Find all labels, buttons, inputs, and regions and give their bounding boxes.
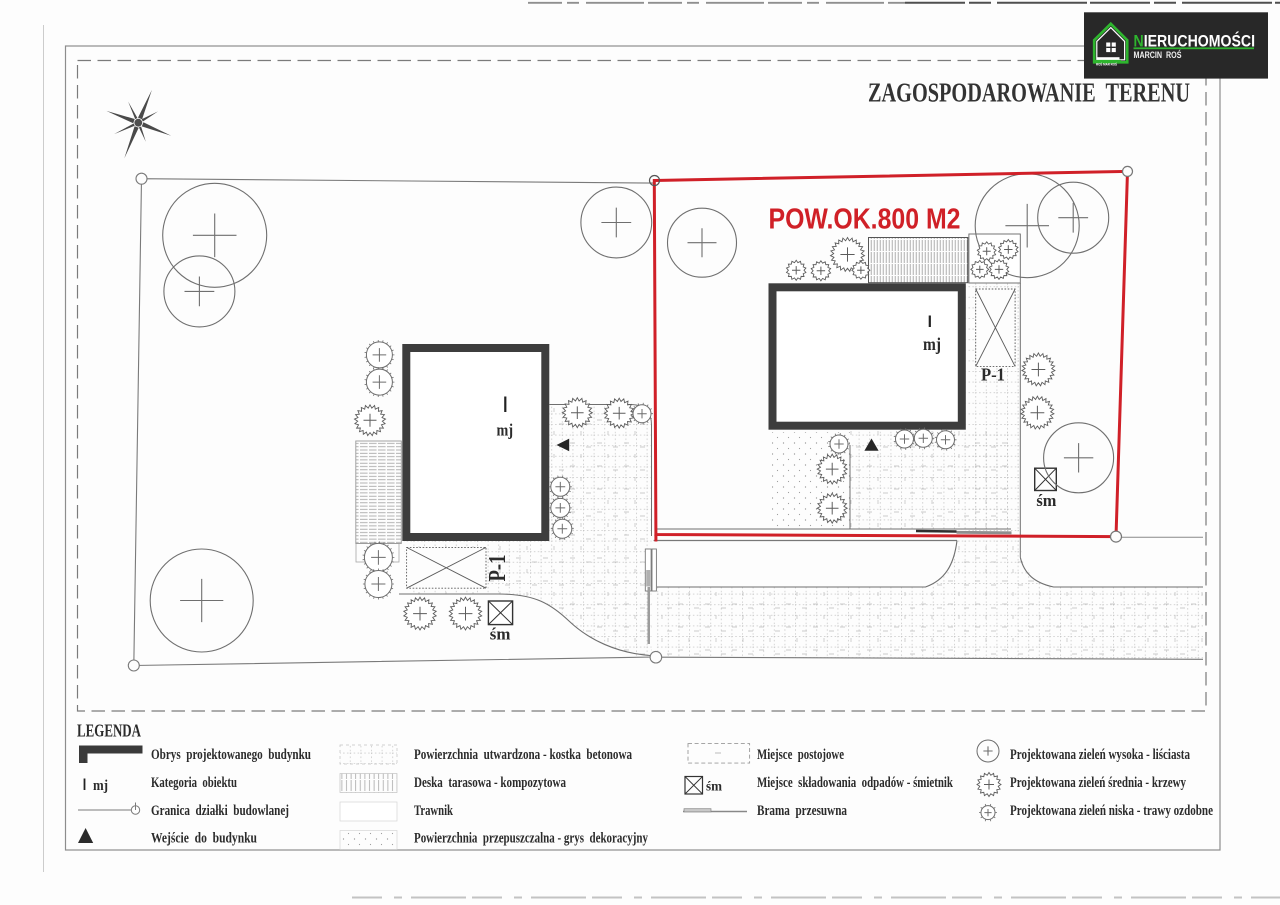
svg-text:Powierzchnia przepuszczalna -: Powierzchnia przepuszczalna - grys dekor…	[414, 831, 649, 847]
svg-text:P-1: P-1	[981, 365, 1005, 385]
svg-text:śm: śm	[1036, 491, 1056, 510]
svg-text:P-1: P-1	[485, 555, 511, 582]
svg-text:Brama przesuwna: Brama przesuwna	[757, 803, 848, 819]
svg-text:POW.OK.800 M2: POW.OK.800 M2	[769, 204, 961, 236]
svg-text:Projektowana zieleń średnia -: Projektowana zieleń średnia - krzewy	[1010, 775, 1187, 791]
svg-text:mj: mj	[923, 334, 941, 354]
svg-text:ROŚ MAR ROŚ: ROŚ MAR ROŚ	[1096, 62, 1118, 67]
svg-text:Projektowana zieleń niska - tr: Projektowana zieleń niska - trawy ozdobn…	[1010, 803, 1213, 819]
svg-text:śm: śm	[490, 625, 511, 644]
svg-text:Powierzchnia utwardzona - kos: Powierzchnia utwardzona - kostka betonow…	[414, 747, 633, 763]
svg-text:mj: mj	[93, 778, 108, 794]
svg-text:śm: śm	[706, 780, 722, 795]
svg-text:mj: mj	[497, 421, 514, 440]
svg-text:Obrys projektowanego budynku: Obrys projektowanego budynku	[151, 747, 311, 763]
svg-text:LEGENDA: LEGENDA	[77, 720, 141, 740]
svg-text:Projektowana zieleń wysoka - l: Projektowana zieleń wysoka - liściasta	[1010, 747, 1191, 763]
svg-text:MARCIN ROŚ: MARCIN ROŚ	[1134, 49, 1182, 61]
svg-text:Granica działki budowlanej: Granica działki budowlanej	[151, 803, 289, 819]
svg-text:Trawnik: Trawnik	[414, 803, 454, 819]
svg-text:Kategoria obiektu: Kategoria obiektu	[151, 775, 237, 791]
svg-text:ZAGOSPODAROWANIE TERENU: ZAGOSPODAROWANIE TERENU	[868, 76, 1190, 107]
svg-text:Miejsce składowania odpadów: Miejsce składowania odpadów - śmietnik	[757, 775, 954, 791]
svg-text:Deska tarasowa - kompozytowa: Deska tarasowa - kompozytowa	[414, 775, 567, 791]
svg-text:Miejsce postojowe: Miejsce postojowe	[757, 747, 844, 763]
svg-text:Wejście do budynku: Wejście do budynku	[151, 831, 257, 847]
